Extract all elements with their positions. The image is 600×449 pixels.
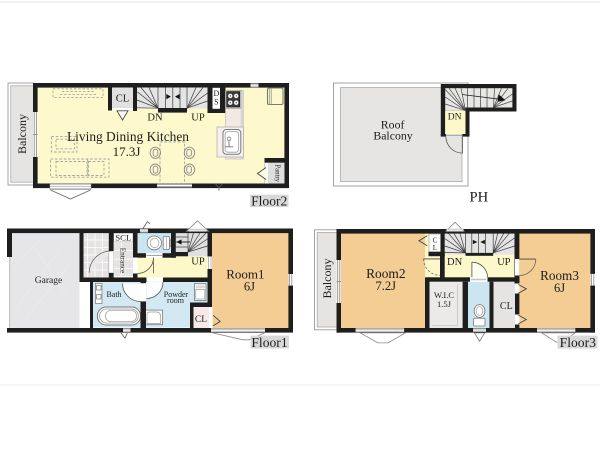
svg-text:7.2J: 7.2J bbox=[376, 279, 397, 293]
svg-text:Balcony: Balcony bbox=[15, 114, 29, 154]
svg-text:room: room bbox=[167, 296, 185, 305]
svg-text:S: S bbox=[214, 98, 218, 107]
svg-text:Living Dining Kitchen: Living Dining Kitchen bbox=[67, 129, 189, 144]
svg-text:CL: CL bbox=[116, 94, 129, 105]
svg-text:Floor3: Floor3 bbox=[560, 335, 596, 350]
svg-text:PH: PH bbox=[469, 189, 488, 205]
svg-text:Balcony: Balcony bbox=[320, 259, 334, 299]
svg-text:SCL: SCL bbox=[115, 232, 131, 242]
svg-text:Entrance: Entrance bbox=[118, 248, 126, 274]
svg-text:UP: UP bbox=[497, 257, 511, 268]
svg-text:L: L bbox=[433, 244, 437, 252]
svg-text:6J: 6J bbox=[244, 280, 255, 294]
svg-text:D: D bbox=[214, 89, 220, 98]
svg-text:UP: UP bbox=[191, 113, 205, 124]
svg-text:Bath: Bath bbox=[106, 290, 121, 299]
svg-text:Garage: Garage bbox=[35, 276, 62, 286]
svg-text:CL: CL bbox=[195, 315, 207, 325]
svg-text:DN: DN bbox=[448, 112, 462, 122]
svg-text:DN: DN bbox=[447, 257, 463, 268]
svg-text:CL: CL bbox=[500, 301, 513, 312]
svg-text:DN: DN bbox=[147, 113, 163, 124]
svg-text:Floor1: Floor1 bbox=[251, 335, 287, 350]
svg-text:Floor2: Floor2 bbox=[251, 193, 287, 208]
svg-text:6J: 6J bbox=[554, 281, 565, 295]
svg-text:Pantry: Pantry bbox=[274, 164, 281, 182]
svg-text:Balcony: Balcony bbox=[373, 129, 412, 143]
svg-text:1.5J: 1.5J bbox=[437, 299, 452, 309]
svg-text:17.3J: 17.3J bbox=[113, 144, 141, 159]
svg-text:UP: UP bbox=[191, 256, 205, 267]
